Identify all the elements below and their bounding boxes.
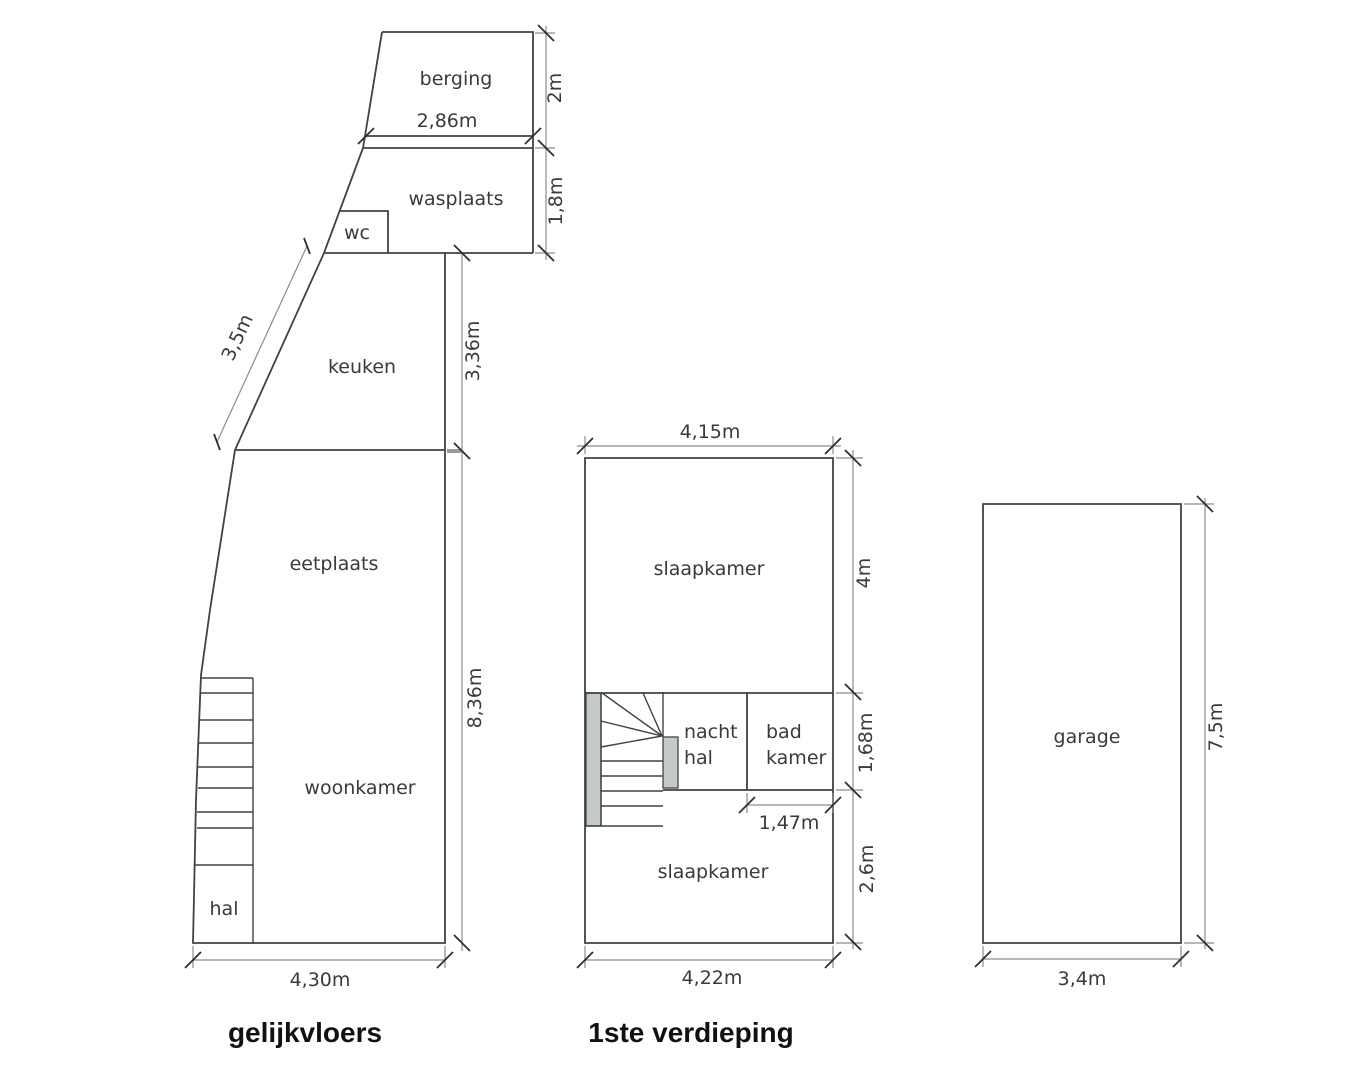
- dim-first-width-top: 4,15m: [680, 421, 741, 443]
- floor-plan-drawing: berging 2,86m 2m wasplaats 1,8m wc 3,5m …: [0, 0, 1370, 1080]
- dim-garage-depth: 7,5m: [1205, 703, 1227, 752]
- room-label-berging: berging: [420, 68, 493, 90]
- garage-plan: garage 7,5m 3,4m: [975, 496, 1227, 990]
- dim-berging-depth: 2m: [544, 73, 566, 104]
- dim-first-width-bottom: 4,22m: [682, 967, 743, 989]
- stair-wall-strip: [586, 693, 601, 826]
- dim-west-wall: 3,5m: [217, 311, 258, 364]
- ground-floor-dimension-ticks: [185, 25, 554, 968]
- room-label-garage: garage: [1054, 726, 1121, 748]
- stair-newel-block: [663, 737, 678, 788]
- first-floor-plan: 4,15m slaapkamer 4m nacht hal bad kamer …: [577, 421, 878, 1048]
- room-label-slaapkamer-front: slaapkamer: [654, 558, 765, 580]
- room-label-badkamer-line1: bad: [766, 721, 802, 743]
- first-floor-dimension-lines: [577, 436, 863, 968]
- dim-garage-width: 3,4m: [1058, 968, 1107, 990]
- room-label-eetplaats: eetplaats: [290, 553, 379, 575]
- dim-keuken-depth: 3,36m: [462, 321, 484, 382]
- room-label-woonkamer: woonkamer: [304, 777, 415, 799]
- ground-floor-dimension-lines: [193, 26, 555, 968]
- dim-back-depth: 2,6m: [856, 845, 878, 894]
- room-label-slaapkamer-back: slaapkamer: [658, 861, 769, 883]
- room-label-keuken: keuken: [328, 356, 396, 378]
- room-label-nachthal-line1: nacht: [684, 721, 738, 743]
- dim-wasplaats-depth: 1,8m: [545, 177, 567, 226]
- ground-floor-walls: [193, 32, 533, 943]
- first-floor-dimension-ticks: [577, 438, 861, 968]
- room-label-hal: hal: [210, 898, 239, 920]
- garage-walls: [983, 504, 1181, 943]
- room-label-nachthal-line2: hal: [684, 747, 713, 769]
- dim-main-depth: 8,36m: [464, 668, 486, 729]
- dim-berging-width: 2,86m: [417, 110, 478, 132]
- ground-floor-title: gelijkvloers: [228, 1017, 382, 1048]
- ground-floor-plan: berging 2,86m 2m wasplaats 1,8m wc 3,5m …: [185, 25, 567, 1048]
- room-label-wasplaats: wasplaats: [408, 188, 503, 210]
- dim-badkamer-width: 1,47m: [759, 812, 820, 834]
- dim-total-width: 4,30m: [290, 969, 351, 991]
- dim-middle-depth: 1,68m: [855, 713, 877, 774]
- dim-front-depth: 4m: [853, 558, 875, 589]
- floor-plan-canvas: berging 2,86m 2m wasplaats 1,8m wc 3,5m …: [0, 0, 1370, 1080]
- room-label-wc: wc: [344, 222, 370, 244]
- first-floor-title: 1ste verdieping: [588, 1017, 793, 1048]
- room-label-badkamer-line2: kamer: [766, 747, 827, 769]
